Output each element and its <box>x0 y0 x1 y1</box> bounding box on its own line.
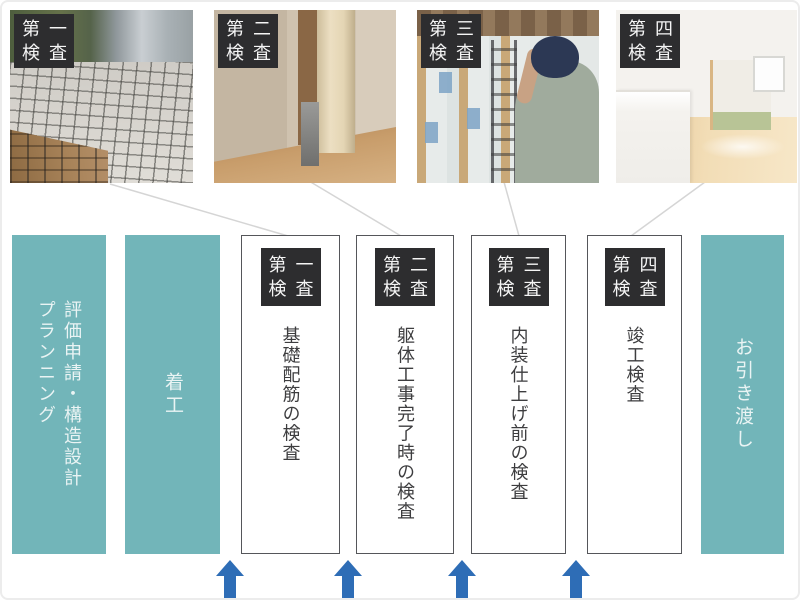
ladder <box>491 40 517 183</box>
insulation-label <box>439 72 452 93</box>
stage-construction-start: 着工 <box>125 235 220 554</box>
up-arrow-icon <box>215 560 245 600</box>
kitchen-counter <box>616 90 690 183</box>
photo-interior-inspection: 第三 検査 <box>417 10 599 183</box>
badge-row: 第四 <box>620 17 680 41</box>
badge-row: 第三 <box>421 17 481 41</box>
stage-handover-label: お引き渡し <box>729 337 756 452</box>
stage-planning-line2: プランニング <box>33 300 59 489</box>
connector-line-4 <box>631 182 705 236</box>
inspection-body-1: 基礎配筋の検査 <box>278 326 304 463</box>
up-arrow-icon <box>561 560 591 600</box>
stage-planning-line1: 評価申請・構造設計 <box>59 300 85 489</box>
photo-badge-3: 第三 検査 <box>421 14 481 68</box>
window <box>753 56 785 92</box>
badge-row: 検査 <box>421 41 481 65</box>
stage-construction-start-label: 着工 <box>159 372 186 418</box>
inspection-box-3: 第三 検査 内装仕上げ前の検査 <box>471 235 566 554</box>
badge-row: 検査 <box>14 41 74 65</box>
connector-line-2 <box>309 181 401 236</box>
inspection-flow-diagram: 第一 検査 第二 検査 第三 検査 第 <box>0 0 800 600</box>
photo-completed-room: 第四 検査 <box>616 10 797 183</box>
badge-row: 検査 <box>605 277 665 301</box>
badge-row: 第一 <box>261 253 321 277</box>
badge-row: 第三 <box>489 253 549 277</box>
inspection-box-4: 第四 検査 竣工検査 <box>587 235 682 554</box>
badge-row: 検査 <box>261 277 321 301</box>
inspection-badge-3: 第三 検査 <box>489 248 549 306</box>
photo-framing: 第二 検査 <box>214 10 396 183</box>
photo-foundation-rebar: 第一 検査 <box>10 10 193 183</box>
stage-planning: 評価申請・構造設計 プランニング <box>12 235 106 554</box>
inspection-badge-1: 第一 検査 <box>261 248 321 306</box>
inspection-box-1: 第一 検査 基礎配筋の検査 <box>241 235 340 554</box>
wood-post <box>317 10 355 153</box>
badge-row: 検査 <box>620 41 680 65</box>
inspection-body-4: 竣工検査 <box>622 326 648 404</box>
badge-row: 第四 <box>605 253 665 277</box>
badge-row: 第二 <box>375 253 435 277</box>
connector-line-3 <box>504 182 519 236</box>
insulation-label <box>467 108 480 129</box>
photo-badge-1: 第一 検査 <box>14 14 74 68</box>
badge-row: 第一 <box>14 17 74 41</box>
photo-badge-4: 第四 検査 <box>620 14 680 68</box>
badge-row: 第二 <box>218 17 278 41</box>
insulation-label <box>425 122 438 143</box>
connector-line-1 <box>110 184 288 236</box>
inspection-badge-4: 第四 検査 <box>605 248 665 306</box>
inspection-body-2: 躯体工事完了時の検査 <box>392 326 418 521</box>
worker-helmet <box>531 36 579 78</box>
stage-planning-label: 評価申請・構造設計 プランニング <box>33 300 85 489</box>
stage-handover: お引き渡し <box>701 235 784 554</box>
inspection-box-2: 第二 検査 躯体工事完了時の検査 <box>356 235 454 554</box>
inspection-body-3: 内装仕上げ前の検査 <box>506 326 532 502</box>
badge-row: 検査 <box>489 277 549 301</box>
photo-badge-2: 第二 検査 <box>218 14 278 68</box>
inspection-badge-2: 第二 検査 <box>375 248 435 306</box>
badge-row: 検査 <box>218 41 278 65</box>
up-arrow-icon <box>333 560 363 600</box>
badge-row: 検査 <box>375 277 435 301</box>
metal-hardware <box>301 102 319 166</box>
up-arrow-icon <box>447 560 477 600</box>
